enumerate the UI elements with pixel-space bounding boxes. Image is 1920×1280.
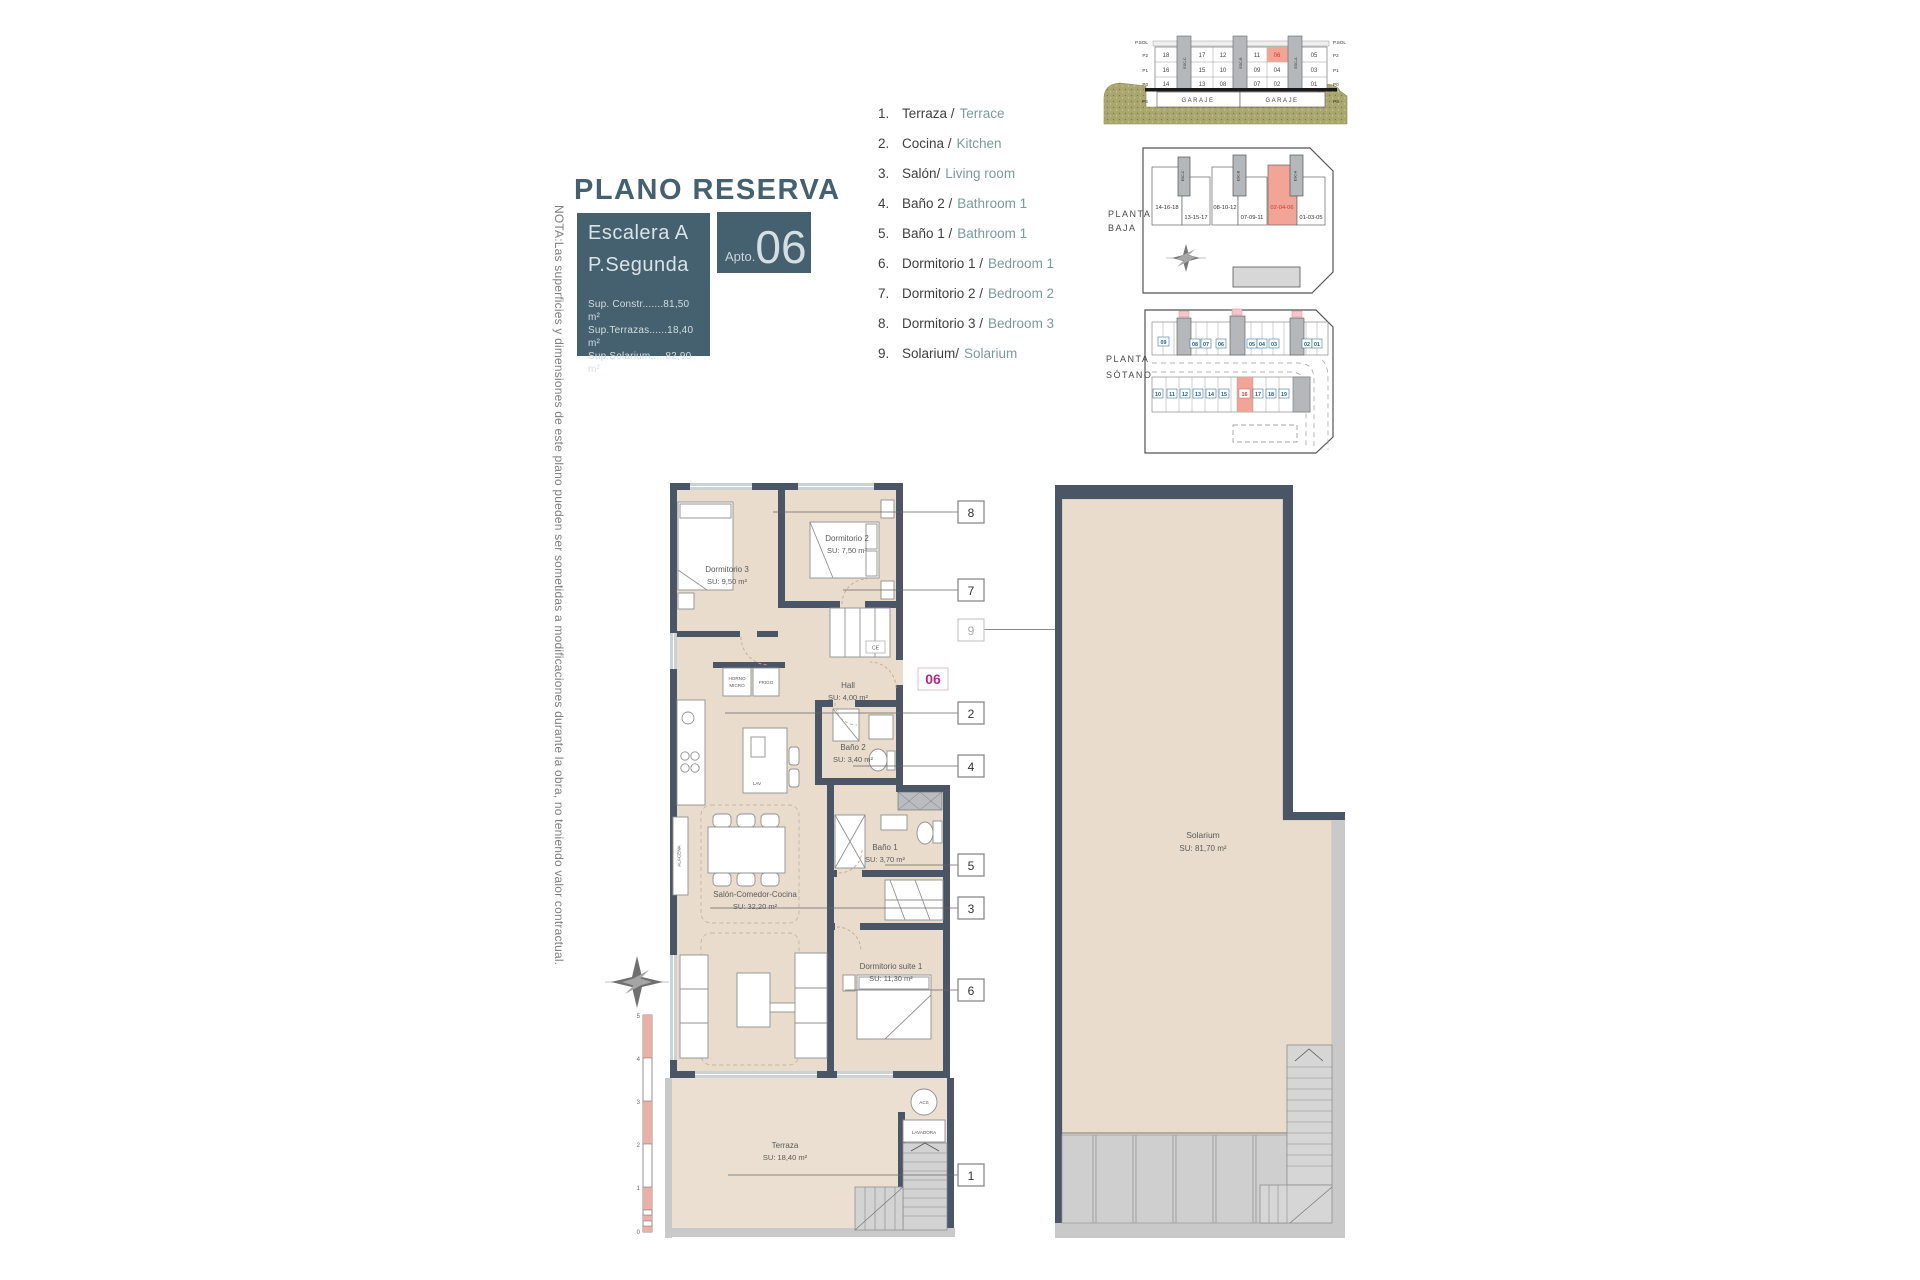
room-area: SU: 7,50 m² <box>827 546 868 555</box>
legend-num: 3. <box>878 166 902 181</box>
legend-en: Bedroom 2 <box>988 286 1054 301</box>
room-area: SU: 9,50 m² <box>707 577 748 586</box>
section-building: ESC-C ESC-B ESC-A 18 17 12 11 06 05 16 1… <box>1135 36 1346 107</box>
unit-cell-highlighted: 06 <box>1274 53 1281 59</box>
callout-1: 1 <box>968 1169 975 1183</box>
floor-label: P.SOL <box>1333 40 1346 45</box>
slab-line <box>1145 88 1337 92</box>
core-label: ESC-B <box>1239 57 1243 69</box>
callout-9: 9 <box>968 624 975 638</box>
unit-cell: 02 <box>1274 82 1281 88</box>
room-name: Solarium <box>1186 830 1220 840</box>
room-name: Dormitorio 2 <box>825 534 869 543</box>
block-label-highlighted: 02-04-06 <box>1270 205 1293 211</box>
ce-tag: CE <box>866 641 885 653</box>
storage-tag: 06 <box>1218 342 1224 348</box>
legend-es: Dormitorio 1 / <box>902 256 983 271</box>
callout-2: 2 <box>968 707 975 721</box>
unit-cell: 14 <box>1163 82 1170 88</box>
storage-tag: 05 <box>1249 342 1255 348</box>
room-name: Dormitorio 3 <box>705 565 749 574</box>
legend-item: 5.Baño 1 /Bathroom 1 <box>878 226 1054 256</box>
unit-cell: 15 <box>1199 68 1206 74</box>
shaft <box>898 792 942 810</box>
legend-item: 7.Dormitorio 2 /Bedroom 2 <box>878 286 1054 316</box>
page: NOTA:Las superficies y dimensiones de es… <box>0 0 1920 1280</box>
lavadora-label: LAVADORA <box>912 1130 937 1135</box>
parking-tag: 15 <box>1221 392 1227 398</box>
room-name: Terraza <box>772 1141 799 1150</box>
room-name: Hall <box>841 681 855 690</box>
legend-en: Bedroom 3 <box>988 316 1054 331</box>
legend-en: Terrace <box>960 106 1005 121</box>
room-name: Dormitorio suite 1 <box>860 962 923 971</box>
legend-es: Baño 2 / <box>902 196 952 211</box>
planta-sotano-diagram: 09 08 07 06 05 04 03 02 01 10 11 <box>1100 300 1350 465</box>
garage-label: GARAJE <box>1265 98 1298 104</box>
legend-en: Living room <box>945 166 1015 181</box>
room-name: Baño 2 <box>840 743 866 752</box>
parking-tag: 14 <box>1208 392 1214 398</box>
legend-num: 7. <box>878 286 902 301</box>
room-area: SU: 81,70 m² <box>1179 844 1226 853</box>
room-area: SU: 18,40 m² <box>763 1153 808 1162</box>
compass-icon <box>605 956 669 1008</box>
legend-es: Baño 1 / <box>902 226 952 241</box>
apto-box: Apto. 06 <box>717 212 811 273</box>
unit-cell: 16 <box>1163 68 1170 74</box>
legend-item: 8.Dormitorio 3 /Bedroom 3 <box>878 316 1054 346</box>
room-name: Baño 1 <box>872 843 898 852</box>
unit-cell: 05 <box>1311 53 1318 59</box>
block-label: 01-03-05 <box>1299 215 1322 221</box>
unit-cell: 10 <box>1220 68 1227 74</box>
unit-tag: 06 <box>918 668 948 690</box>
garage-label: GARAJE <box>1181 98 1214 104</box>
title-block: Escalera A P.Segunda Sup. Constr.......8… <box>577 213 710 356</box>
unit-cell: 01 <box>1311 82 1318 88</box>
scale-tick: 1 <box>637 1186 641 1192</box>
apartment-floor-plan: HORNO MICRO FRIGO LAV ALACENA ACS LAVADO… <box>585 475 1000 1265</box>
scale-tick: 3 <box>637 1100 641 1106</box>
storage-tag: 07 <box>1203 342 1209 348</box>
label-line: SÓTANO <box>1106 370 1152 380</box>
label-line: BAJA <box>1108 223 1137 233</box>
storage-tag: 04 <box>1259 342 1265 348</box>
legend-item: 2.Cocina /Kitchen <box>878 136 1054 166</box>
unit-cell: 04 <box>1274 68 1281 74</box>
scale-bar: 5 4 3 2 1 0 <box>637 1014 652 1236</box>
unit-cell: 11 <box>1254 53 1261 59</box>
core-label: ESC-A <box>1294 170 1298 181</box>
unit-cell: 12 <box>1220 53 1227 59</box>
floor-label: PS <box>1333 99 1339 104</box>
legend-es: Cocina / <box>902 136 952 151</box>
legend-num: 5. <box>878 226 902 241</box>
core-label: ESC-A <box>1294 57 1298 69</box>
legend-en: Bathroom 1 <box>957 196 1027 211</box>
block-label: 14-16-18 <box>1155 205 1178 211</box>
block-label: 13-15-17 <box>1184 215 1207 221</box>
page-title: PLANO RESERVA <box>574 174 841 207</box>
room-area: SU: 32,20 m² <box>733 902 778 911</box>
parking-tag: 17 <box>1255 392 1261 398</box>
parking-tag: 13 <box>1195 392 1201 398</box>
unit-cell: 17 <box>1199 53 1206 59</box>
apto-number: 06 <box>755 228 806 267</box>
legend-item: 3.Salón/Living room <box>878 166 1054 196</box>
building-section-diagram: ESC-C ESC-B ESC-A 18 17 12 11 06 05 16 1… <box>1100 10 1360 128</box>
scale-tick: 4 <box>637 1057 641 1063</box>
floor-label: P2 <box>1142 53 1148 58</box>
room-name: Salón-Comedor-Cocina <box>713 890 797 899</box>
parking-tag: 18 <box>1268 392 1274 398</box>
label-line: PLANTA <box>1108 209 1151 219</box>
sup-terrazas: Sup.Terrazas......18,40 m² <box>588 324 699 350</box>
core-label: ESC-C <box>1181 170 1185 181</box>
legend-en: Bedroom 1 <box>988 256 1054 271</box>
legend-es: Terraza / <box>902 106 955 121</box>
acs-label: ACS <box>919 1100 928 1105</box>
block-label: 07-09-11 <box>1241 215 1264 221</box>
apto-label: Apto. <box>725 249 755 264</box>
legend-es: Dormitorio 2 / <box>902 286 983 301</box>
legend-num: 9. <box>878 346 902 361</box>
planta-baja-diagram: ESC-C ESC-B ESC-A 14-16-18 13-15-17 08-1… <box>1100 145 1350 300</box>
scale-tick: 2 <box>637 1143 641 1149</box>
alacena-label: ALACENA <box>677 844 682 866</box>
floor-label: P1 <box>1142 68 1148 73</box>
scale-tick: 0 <box>637 1230 641 1236</box>
callout-5: 5 <box>968 859 975 873</box>
legend-num: 6. <box>878 256 902 271</box>
parking-tags: 10 11 12 13 14 15 16 17 18 19 <box>1153 389 1289 398</box>
floor-label: P2 <box>1333 53 1339 58</box>
legend-num: 2. <box>878 136 902 151</box>
scale-tick: 5 <box>637 1014 641 1020</box>
legend-item: 1.Terraza /Terrace <box>878 106 1054 136</box>
sup-constr: Sup. Constr.......81,50 m² <box>588 298 699 324</box>
parking-tag: 11 <box>1169 392 1175 398</box>
legend-item: 4.Baño 2 /Bathroom 1 <box>878 196 1054 226</box>
pergola <box>1062 1133 1287 1223</box>
unit-cell: 13 <box>1199 82 1206 88</box>
sup-solarium: Sup.Solarium.....82,90 m² <box>588 350 699 376</box>
storage-tag: 03 <box>1271 342 1277 348</box>
legend-es: Solarium/ <box>902 346 959 361</box>
callout-7: 7 <box>968 584 975 598</box>
callout-6: 6 <box>968 984 975 998</box>
unit-cell: 03 <box>1311 68 1318 74</box>
horno-label: HORNO <box>728 676 746 681</box>
lav-label: LAV <box>753 781 762 786</box>
ce-label: CE <box>872 646 880 652</box>
unit-cell: 07 <box>1254 82 1261 88</box>
legend-en: Kitchen <box>957 136 1002 151</box>
legend-num: 8. <box>878 316 902 331</box>
storage-tag: 09 <box>1161 340 1167 346</box>
unit-tag-label: 06 <box>925 671 941 687</box>
parking-tag: 12 <box>1182 392 1188 398</box>
unit-cell: 08 <box>1220 82 1227 88</box>
storage-tag: 01 <box>1314 342 1320 348</box>
parking-tag-highlighted: 16 <box>1242 392 1248 398</box>
pool <box>1233 267 1300 287</box>
scale-labels: 5 4 3 2 1 0 <box>637 1014 641 1236</box>
room-area: SU: 4,00 m² <box>828 693 869 702</box>
room-legend: 1.Terraza /Terrace 2.Cocina /Kitchen 3.S… <box>878 106 1054 376</box>
floor-label: PS <box>1142 99 1148 104</box>
callout-3: 3 <box>968 902 975 916</box>
solarium-plan: Solarium SU: 81,70 m² <box>1045 475 1355 1265</box>
unit-cell: 09 <box>1254 68 1261 74</box>
legend-item: 9.Solarium/Solarium <box>878 346 1054 376</box>
floor-label: P0 <box>1142 82 1148 87</box>
room-area: SU: 3,70 m² <box>865 855 906 864</box>
floor-label: P.SOL <box>1135 40 1148 45</box>
escalera-label: Escalera A <box>588 222 699 245</box>
parking-tag: 19 <box>1281 392 1287 398</box>
label-line: PLANTA <box>1106 354 1149 364</box>
planta-label: P.Segunda <box>588 254 699 277</box>
legend-es: Dormitorio 3 / <box>902 316 983 331</box>
room-area: SU: 11,30 m² <box>869 974 913 983</box>
legend-es: Salón/ <box>902 166 940 181</box>
floor-label: P1 <box>1333 68 1339 73</box>
core-label: ESC-C <box>1183 57 1187 69</box>
floor-label: P0 <box>1333 82 1339 87</box>
core-label: ESC-B <box>1237 170 1241 181</box>
storage-tag: 02 <box>1304 342 1310 348</box>
legend-item: 6.Dormitorio 1 /Bedroom 1 <box>878 256 1054 286</box>
room-area: SU: 3,40 m² <box>833 755 874 764</box>
legend-en: Bathroom 1 <box>957 226 1027 241</box>
frigo-label: FRIGO <box>759 680 774 685</box>
legend-num: 4. <box>878 196 902 211</box>
callout-4: 4 <box>968 760 975 774</box>
garage-row: GARAJE GARAJE <box>1157 92 1325 107</box>
callout-8: 8 <box>968 506 975 520</box>
disclaimer-note: NOTA:Las superficies y dimensiones de es… <box>548 205 566 1085</box>
block-label: 08-10-12 <box>1213 205 1236 211</box>
storage-tag: 08 <box>1192 342 1198 348</box>
horno-label: MICRO <box>729 683 745 688</box>
parking-tag: 10 <box>1155 392 1161 398</box>
unit-cell: 18 <box>1163 53 1170 59</box>
legend-num: 1. <box>878 106 902 121</box>
legend-en: Solarium <box>964 346 1017 361</box>
